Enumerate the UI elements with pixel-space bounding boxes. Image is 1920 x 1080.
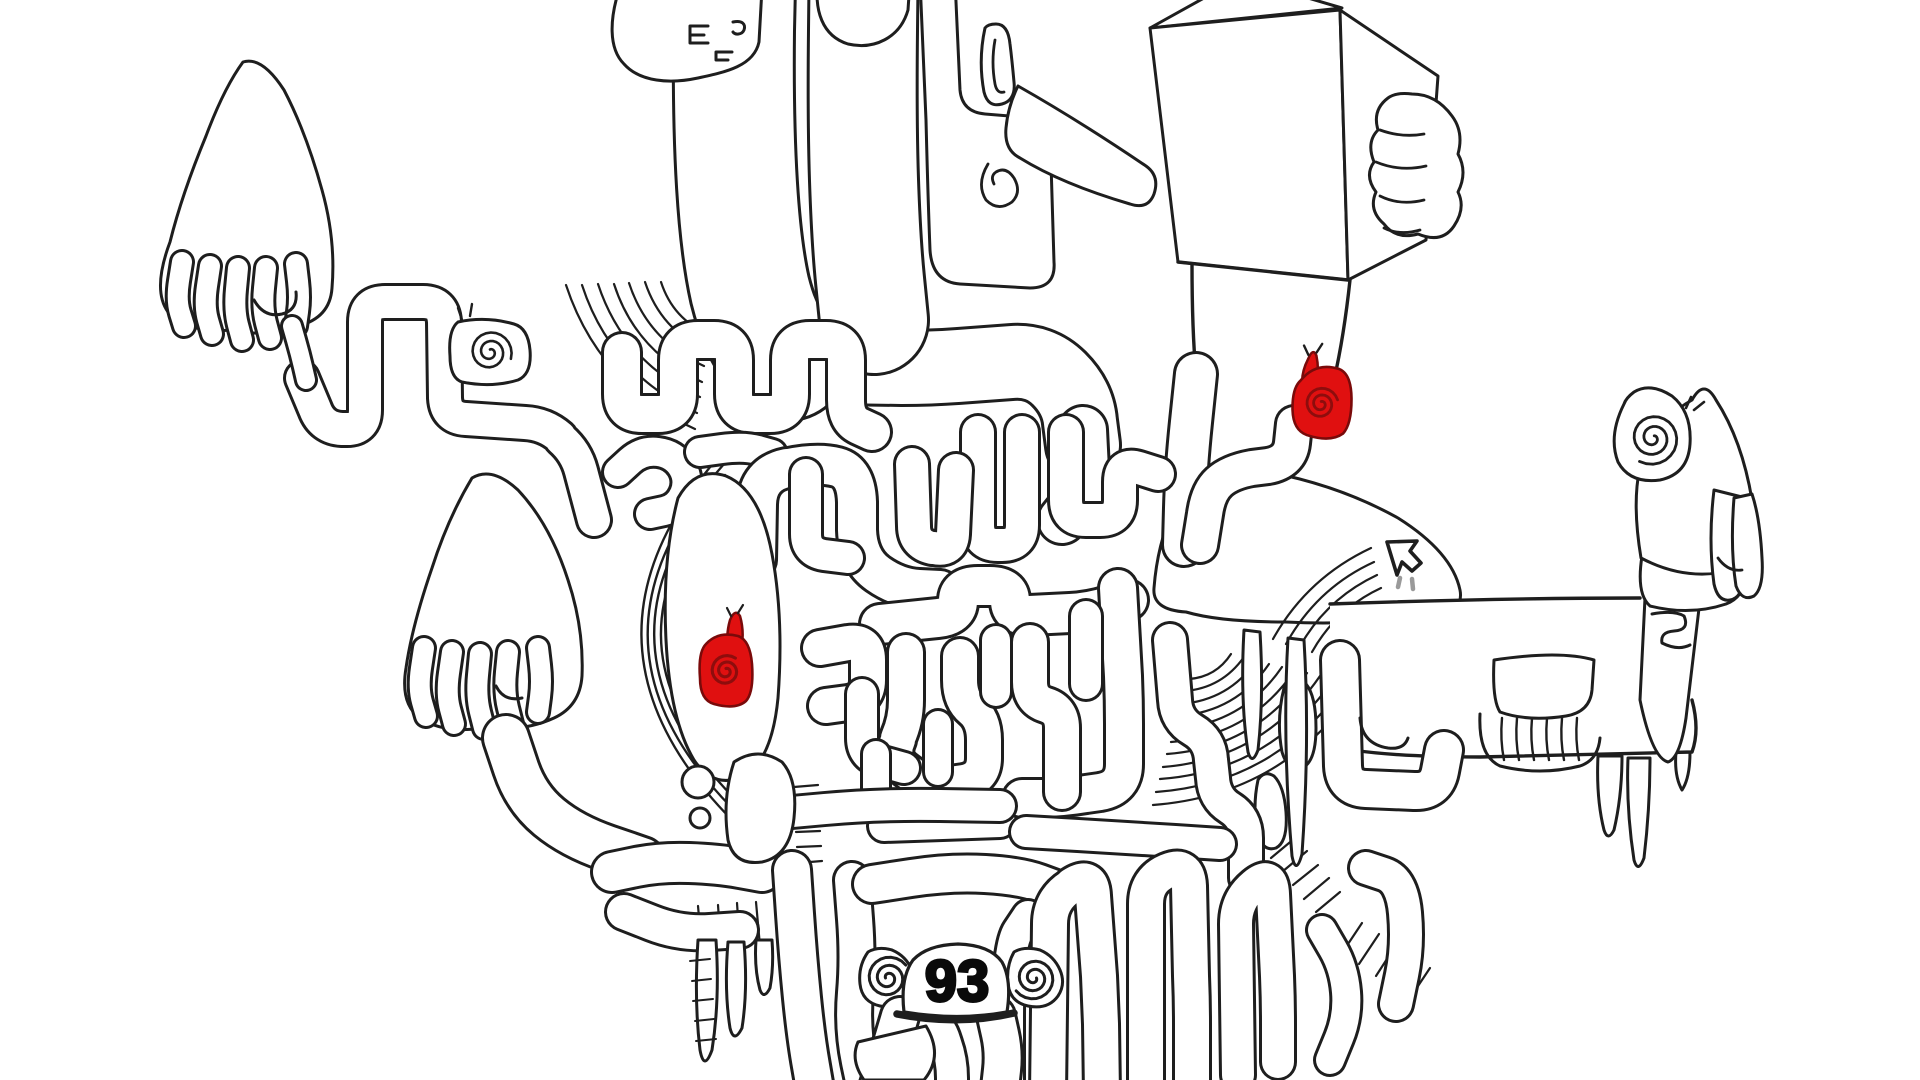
svg-text:93: 93 — [925, 949, 990, 1014]
